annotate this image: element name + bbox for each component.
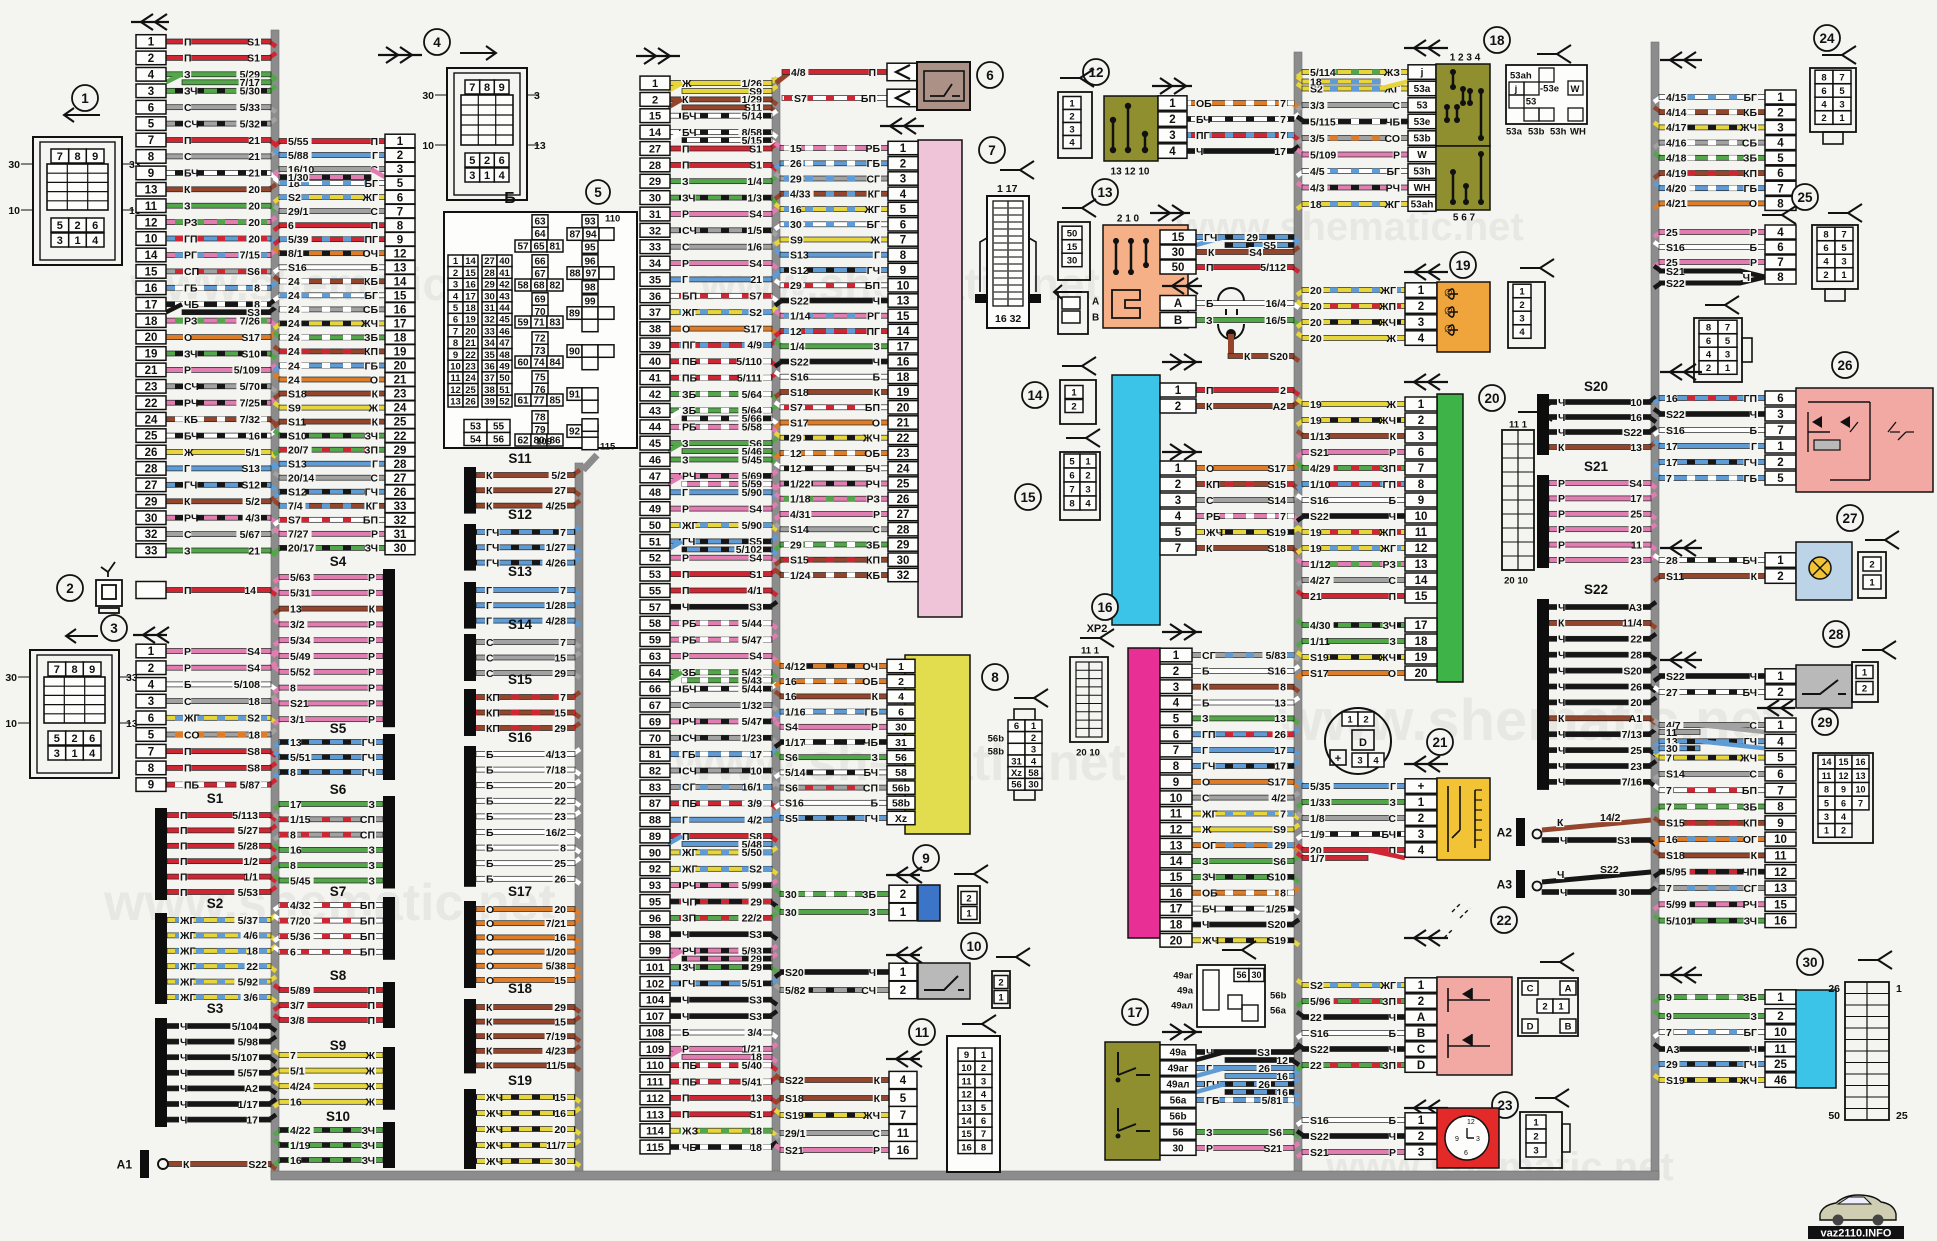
svg-text:ЖЧ: ЖЧ: [485, 1108, 503, 1120]
svg-text:42: 42: [649, 389, 661, 401]
svg-text:5/83: 5/83: [1266, 650, 1287, 662]
svg-text:4/2: 4/2: [747, 814, 762, 826]
svg-text:25: 25: [1797, 190, 1813, 205]
svg-text:3/1: 3/1: [290, 714, 305, 726]
svg-text:S21: S21: [290, 698, 309, 710]
svg-text:64: 64: [649, 667, 662, 679]
svg-text:3: 3: [1777, 123, 1783, 135]
svg-text:ГБ: ГБ: [365, 360, 379, 372]
svg-text:4: 4: [433, 35, 441, 50]
svg-text:21: 21: [248, 168, 260, 180]
svg-text:Б: Б: [1388, 1115, 1396, 1127]
svg-text:4/30: 4/30: [1310, 620, 1331, 632]
svg-text:17: 17: [1127, 1005, 1142, 1020]
svg-text:4/29: 4/29: [1310, 463, 1331, 475]
svg-text:П: П: [180, 841, 188, 853]
svg-text:ГБ: ГБ: [184, 283, 198, 295]
svg-text:22: 22: [465, 350, 476, 361]
svg-text:Р: Р: [682, 651, 689, 663]
svg-text:S3: S3: [749, 1011, 762, 1023]
svg-text:S4: S4: [1629, 478, 1642, 490]
svg-text:S4: S4: [330, 554, 347, 569]
svg-text:S4: S4: [749, 553, 762, 565]
svg-text:3: 3: [54, 748, 60, 760]
svg-text:ГЧ: ГЧ: [1202, 761, 1215, 773]
svg-text:4: 4: [499, 170, 506, 182]
svg-text:33: 33: [394, 501, 407, 513]
svg-text:БП: БП: [360, 931, 375, 943]
svg-text:ЖГ: ЖГ: [1384, 199, 1400, 211]
svg-text:А: А: [1174, 298, 1182, 310]
svg-text:8: 8: [290, 767, 296, 779]
svg-text:S19: S19: [1267, 935, 1286, 947]
svg-text:113: 113: [646, 1109, 664, 1121]
svg-text:S19: S19: [1267, 527, 1286, 539]
svg-text:Г: Г: [486, 600, 492, 612]
svg-text:16 32: 16 32: [995, 313, 1021, 325]
svg-text:29: 29: [394, 445, 407, 457]
svg-text:10: 10: [5, 718, 17, 730]
svg-text:+: +: [1335, 753, 1341, 765]
svg-text:56b: 56b: [988, 733, 1005, 744]
svg-text:38: 38: [484, 385, 495, 396]
svg-text:7: 7: [1280, 130, 1286, 142]
svg-text:5/81: 5/81: [1262, 1095, 1283, 1107]
svg-text:О: О: [370, 374, 378, 386]
svg-text:Б: Б: [184, 679, 192, 691]
svg-text:Р: Р: [682, 209, 689, 221]
svg-text:S13: S13: [241, 463, 260, 475]
svg-text:Ч: Ч: [869, 967, 876, 979]
svg-text:5/37: 5/37: [238, 915, 259, 927]
svg-text:27: 27: [1666, 687, 1678, 699]
svg-text:ГЧ: ГЧ: [1744, 1059, 1757, 1071]
svg-text:К: К: [1558, 442, 1565, 454]
svg-text:14: 14: [1415, 575, 1428, 587]
svg-text:S2: S2: [749, 307, 762, 319]
svg-text:31: 31: [484, 303, 495, 314]
svg-text:Б: Б: [486, 764, 494, 776]
svg-text:6: 6: [148, 713, 154, 725]
svg-text:17: 17: [1170, 904, 1183, 916]
svg-text:Ч: Ч: [1750, 671, 1757, 683]
svg-text:ЧП: ЧП: [1742, 867, 1757, 879]
svg-text:13: 13: [145, 184, 158, 196]
svg-text:8: 8: [254, 283, 260, 295]
svg-text:Р: Р: [1750, 227, 1757, 239]
svg-text:26: 26: [1828, 983, 1840, 995]
svg-text:С: С: [370, 206, 378, 218]
svg-text:19: 19: [1310, 527, 1322, 539]
svg-text:11: 11: [961, 1076, 972, 1087]
svg-text:В: В: [1565, 1021, 1572, 1032]
svg-text:ЗЧ: ЗЧ: [364, 543, 378, 555]
svg-text:4: 4: [1841, 812, 1846, 822]
svg-text:РБ: РБ: [682, 634, 697, 646]
svg-text:1/18: 1/18: [790, 494, 811, 506]
svg-text:15: 15: [554, 1016, 566, 1028]
svg-text:28: 28: [484, 268, 495, 279]
svg-text:13: 13: [750, 1093, 762, 1105]
svg-text:S16: S16: [508, 730, 533, 745]
svg-text:53: 53: [1526, 96, 1537, 107]
svg-text:КП: КП: [866, 555, 880, 567]
svg-text:Р: Р: [682, 258, 689, 270]
svg-text:12: 12: [394, 248, 407, 260]
svg-text:S18: S18: [1267, 543, 1286, 555]
svg-text:3: 3: [1418, 431, 1424, 443]
svg-text:3/4: 3/4: [747, 1027, 762, 1039]
svg-text:РЧ: РЧ: [1386, 182, 1400, 194]
svg-text:БП: БП: [363, 515, 378, 527]
svg-text:20: 20: [1170, 935, 1183, 947]
svg-text:56: 56: [1011, 780, 1022, 791]
svg-text:29/1: 29/1: [785, 1128, 806, 1140]
svg-text:9: 9: [92, 151, 98, 163]
svg-text:77: 77: [533, 396, 545, 407]
svg-text:61: 61: [517, 396, 529, 407]
svg-text:10: 10: [1774, 1027, 1787, 1039]
svg-text:16: 16: [248, 430, 260, 442]
svg-text:КГ: КГ: [366, 501, 378, 513]
svg-text:Б: Б: [486, 842, 494, 854]
svg-text:ГЧ: ГЧ: [362, 752, 375, 764]
svg-text:4: 4: [1777, 736, 1784, 748]
svg-text:1/17: 1/17: [238, 1099, 259, 1111]
svg-text:28: 28: [145, 464, 158, 476]
svg-text:7: 7: [1666, 883, 1672, 895]
svg-text:З: З: [873, 341, 880, 353]
svg-text:24: 24: [288, 318, 300, 330]
svg-text:11 1: 11 1: [1081, 645, 1100, 656]
svg-text:О: О: [486, 975, 494, 987]
svg-text:13: 13: [290, 737, 302, 749]
svg-text:46: 46: [649, 455, 661, 467]
svg-text:W: W: [1571, 84, 1580, 95]
svg-text:1/8: 1/8: [1310, 813, 1325, 825]
svg-text:6: 6: [898, 706, 904, 718]
svg-text:27: 27: [1842, 511, 1857, 526]
svg-text:15: 15: [554, 652, 566, 664]
svg-text:1: 1: [900, 907, 907, 919]
svg-text:30: 30: [394, 543, 407, 555]
svg-text:S5: S5: [330, 721, 347, 736]
svg-text:4/9: 4/9: [747, 340, 762, 352]
svg-text:П: П: [682, 160, 690, 172]
svg-text:ПГ: ПГ: [1196, 130, 1210, 142]
svg-text:П: П: [682, 585, 690, 597]
svg-text:Ч: Ч: [1389, 1044, 1396, 1056]
svg-text:Р: Р: [368, 588, 375, 600]
svg-text:6: 6: [981, 1116, 986, 1127]
svg-text:9: 9: [89, 664, 95, 676]
svg-text:5: 5: [469, 155, 475, 167]
svg-text:19: 19: [897, 387, 910, 399]
svg-text:ЗБ: ЗБ: [682, 667, 697, 679]
svg-text:S3: S3: [749, 929, 762, 941]
svg-text:14: 14: [394, 276, 407, 288]
svg-text:КП: КП: [486, 692, 500, 704]
svg-text:1: 1: [81, 91, 89, 106]
svg-text:Ч: Ч: [1558, 761, 1565, 773]
svg-text:Р: Р: [1206, 1143, 1213, 1155]
svg-text:5/14: 5/14: [742, 111, 763, 123]
svg-text:20: 20: [1310, 333, 1322, 345]
svg-text:20 10: 20 10: [1076, 747, 1100, 758]
svg-text:РЧ: РЧ: [184, 398, 198, 410]
svg-text:Ч: Ч: [1750, 409, 1757, 421]
svg-text:5/101: 5/101: [1666, 915, 1692, 927]
svg-text:Р: Р: [368, 572, 375, 584]
svg-text:З: З: [368, 875, 375, 887]
svg-text:ПБ: ПБ: [682, 372, 698, 384]
svg-text:5/109: 5/109: [234, 365, 260, 377]
svg-text:34: 34: [649, 258, 662, 270]
svg-text:1/33: 1/33: [1310, 797, 1331, 809]
svg-text:Р: Р: [1558, 478, 1565, 490]
svg-text:КБ: КБ: [866, 570, 880, 582]
svg-text:69: 69: [534, 295, 546, 306]
svg-text:Б: Б: [486, 749, 494, 761]
svg-text:Б: Б: [486, 874, 494, 886]
svg-text:11: 11: [915, 1025, 930, 1040]
svg-text:28: 28: [1630, 650, 1642, 662]
svg-text:ЖЧ: ЖЧ: [1201, 935, 1219, 947]
svg-text:7/21: 7/21: [546, 918, 567, 930]
svg-text:ЗЧ: ЗЧ: [682, 192, 696, 204]
svg-text:К: К: [486, 500, 493, 512]
svg-text:С: С: [370, 473, 378, 485]
svg-text:S13: S13: [790, 250, 809, 262]
svg-text:20: 20: [1310, 285, 1322, 297]
svg-text:19: 19: [1310, 415, 1322, 427]
svg-text:8: 8: [1280, 682, 1286, 694]
svg-text:1: 1: [1841, 270, 1847, 281]
svg-text:ЖГ: ЖГ: [1380, 543, 1396, 555]
svg-text:71: 71: [533, 318, 545, 329]
svg-text:7: 7: [54, 664, 60, 676]
svg-text:16: 16: [785, 691, 797, 703]
svg-text:28: 28: [1828, 627, 1844, 642]
svg-text:К: К: [682, 94, 689, 106]
svg-text:4/18: 4/18: [1666, 153, 1687, 165]
svg-text:4: 4: [981, 1090, 987, 1101]
svg-text:ГБ: ГБ: [1206, 1095, 1220, 1107]
svg-text:15: 15: [1172, 232, 1185, 244]
svg-text:3: 3: [1533, 1145, 1538, 1156]
svg-text:35: 35: [649, 274, 661, 286]
svg-text:2: 2: [1823, 270, 1828, 281]
svg-text:D: D: [1527, 1021, 1534, 1032]
svg-text:П: П: [184, 585, 192, 597]
svg-text:5/99: 5/99: [742, 880, 763, 892]
svg-text:Р: Р: [368, 651, 375, 663]
svg-text:7/20: 7/20: [290, 915, 311, 927]
svg-text:2: 2: [148, 663, 154, 675]
svg-text:4: 4: [89, 748, 96, 760]
svg-text:БП: БП: [861, 93, 876, 105]
svg-text:С: С: [184, 696, 192, 708]
svg-text:7: 7: [1280, 114, 1286, 126]
svg-text:32: 32: [897, 570, 910, 582]
svg-text:А1: А1: [117, 1157, 133, 1171]
svg-text:Ч: Ч: [1558, 745, 1565, 757]
svg-text:2: 2: [1071, 401, 1076, 412]
svg-text:Б: Б: [370, 262, 378, 274]
svg-text:23: 23: [1630, 761, 1642, 773]
svg-text:СЧ: СЧ: [682, 765, 697, 777]
svg-text:СГ: СГ: [682, 782, 696, 794]
svg-text:7: 7: [1777, 785, 1783, 797]
svg-text:30: 30: [1666, 743, 1678, 755]
svg-text:30: 30: [1802, 955, 1817, 970]
svg-text:7/27: 7/27: [288, 529, 309, 541]
svg-text:16: 16: [1855, 757, 1865, 767]
svg-text:13 12 10: 13 12 10: [1111, 167, 1150, 178]
svg-text:БЧ: БЧ: [184, 430, 199, 442]
svg-text:20: 20: [394, 361, 407, 373]
svg-text:50: 50: [1067, 228, 1078, 239]
svg-text:96: 96: [584, 257, 596, 268]
svg-text:33: 33: [484, 326, 495, 337]
svg-text:7: 7: [1777, 183, 1783, 195]
svg-text:9: 9: [922, 851, 930, 866]
svg-text:Б: Б: [1749, 242, 1757, 254]
svg-text:5: 5: [1175, 527, 1182, 539]
svg-text:БЧ: БЧ: [865, 463, 880, 475]
svg-text:7/15: 7/15: [240, 250, 261, 262]
svg-text:S15: S15: [1666, 818, 1685, 830]
svg-text:27: 27: [145, 480, 158, 492]
svg-text:5/96: 5/96: [1310, 996, 1331, 1008]
svg-text:ЖЧ: ЖЧ: [1378, 317, 1396, 329]
svg-text:2 1 0: 2 1 0: [1117, 214, 1140, 225]
svg-text:8: 8: [148, 763, 155, 775]
svg-text:1/4: 1/4: [747, 176, 762, 188]
svg-text:14: 14: [897, 326, 910, 338]
svg-text:S22: S22: [1584, 582, 1608, 597]
svg-text:12: 12: [450, 385, 461, 396]
svg-text:43: 43: [499, 291, 510, 302]
svg-text:2: 2: [1542, 1001, 1547, 1012]
svg-text:55: 55: [493, 422, 505, 433]
svg-text:∅: ∅: [1444, 306, 1453, 317]
svg-text:S16: S16: [1310, 495, 1329, 507]
svg-text:26: 26: [1837, 358, 1853, 373]
svg-text:Ч: Ч: [1389, 1012, 1396, 1024]
svg-text:13: 13: [961, 1103, 972, 1114]
svg-text:7: 7: [900, 1110, 906, 1122]
svg-text:23: 23: [554, 811, 566, 823]
svg-text:ЖЧ: ЖЧ: [1739, 122, 1757, 134]
svg-text:Ч: Ч: [1558, 665, 1565, 677]
svg-text:О: О: [1749, 198, 1757, 210]
svg-text:1/30: 1/30: [288, 172, 309, 184]
svg-text:S10: S10: [241, 348, 260, 360]
svg-text:РЧ: РЧ: [682, 880, 696, 892]
svg-text:8: 8: [1824, 785, 1829, 795]
svg-text:58: 58: [517, 281, 529, 292]
svg-text:5/57: 5/57: [238, 1068, 259, 1080]
svg-text:S20: S20: [785, 967, 804, 979]
svg-text:89: 89: [649, 831, 661, 843]
svg-text:38: 38: [649, 324, 661, 336]
svg-text:S8: S8: [330, 968, 347, 983]
svg-text:S6: S6: [247, 266, 260, 278]
svg-text:СП: СП: [863, 782, 878, 794]
svg-text:2: 2: [1533, 1131, 1538, 1142]
svg-text:ЖГ: ЖГ: [179, 976, 195, 988]
svg-text:88: 88: [649, 815, 661, 827]
svg-text:1: 1: [998, 992, 1004, 1003]
svg-text:4: 4: [1173, 698, 1180, 710]
svg-text:20: 20: [1630, 524, 1642, 536]
svg-text:81: 81: [649, 749, 661, 761]
svg-text:8: 8: [981, 1142, 986, 1153]
svg-text:10: 10: [897, 280, 910, 292]
svg-text:3: 3: [110, 621, 118, 636]
svg-text:П: П: [682, 569, 690, 581]
svg-text:88: 88: [569, 269, 581, 280]
svg-text:S16: S16: [1666, 425, 1685, 437]
svg-text:11: 11: [1822, 771, 1832, 781]
svg-text:70: 70: [649, 733, 661, 745]
svg-text:8: 8: [560, 842, 566, 854]
svg-text:21: 21: [394, 375, 407, 387]
svg-text:S1: S1: [749, 569, 762, 581]
svg-text:1 2 3 4: 1 2 3 4: [1450, 53, 1481, 64]
svg-text:7: 7: [1280, 511, 1286, 523]
svg-text:ЖГ: ЖГ: [179, 992, 195, 1004]
svg-text:18: 18: [248, 729, 260, 741]
svg-text:ЗП: ЗП: [1382, 1060, 1396, 1072]
svg-text:4/5: 4/5: [1310, 166, 1325, 178]
svg-text:КБ: КБ: [1743, 107, 1757, 119]
svg-text:ГЧ: ГЧ: [867, 265, 880, 277]
svg-text:ЗБ: ЗБ: [682, 389, 697, 401]
svg-text:94: 94: [585, 230, 597, 241]
svg-text:+: +: [1418, 781, 1425, 793]
svg-text:4/21: 4/21: [1666, 198, 1687, 210]
svg-text:З: З: [184, 201, 191, 213]
svg-text:10: 10: [1170, 793, 1183, 805]
svg-text:11: 11: [1170, 809, 1183, 821]
svg-text:Р: Р: [1558, 539, 1565, 551]
svg-text:1/4: 1/4: [790, 341, 805, 353]
svg-text:Р: Р: [368, 714, 375, 726]
svg-text:ОБ: ОБ: [862, 676, 878, 688]
svg-text:5/35: 5/35: [1310, 781, 1331, 793]
svg-text:11: 11: [145, 201, 158, 213]
svg-text:41: 41: [499, 268, 510, 279]
svg-text:1: 1: [1069, 98, 1075, 109]
svg-text:6: 6: [1014, 721, 1019, 732]
svg-text:О: О: [486, 918, 494, 930]
svg-text:S3: S3: [749, 602, 762, 614]
svg-text:9: 9: [1777, 818, 1783, 830]
svg-text:1: 1: [1418, 980, 1425, 992]
svg-text:24: 24: [465, 373, 476, 384]
svg-text:8: 8: [1706, 322, 1711, 333]
svg-text:59: 59: [517, 318, 529, 329]
svg-text:БЧ: БЧ: [184, 168, 199, 180]
svg-text:11: 11: [1631, 539, 1642, 551]
svg-text:3: 3: [1824, 812, 1829, 822]
svg-text:2: 2: [900, 158, 906, 170]
svg-text:75: 75: [534, 373, 546, 384]
svg-text:ОБ: ОБ: [1202, 888, 1218, 900]
svg-text:Ч: Ч: [1558, 697, 1565, 709]
